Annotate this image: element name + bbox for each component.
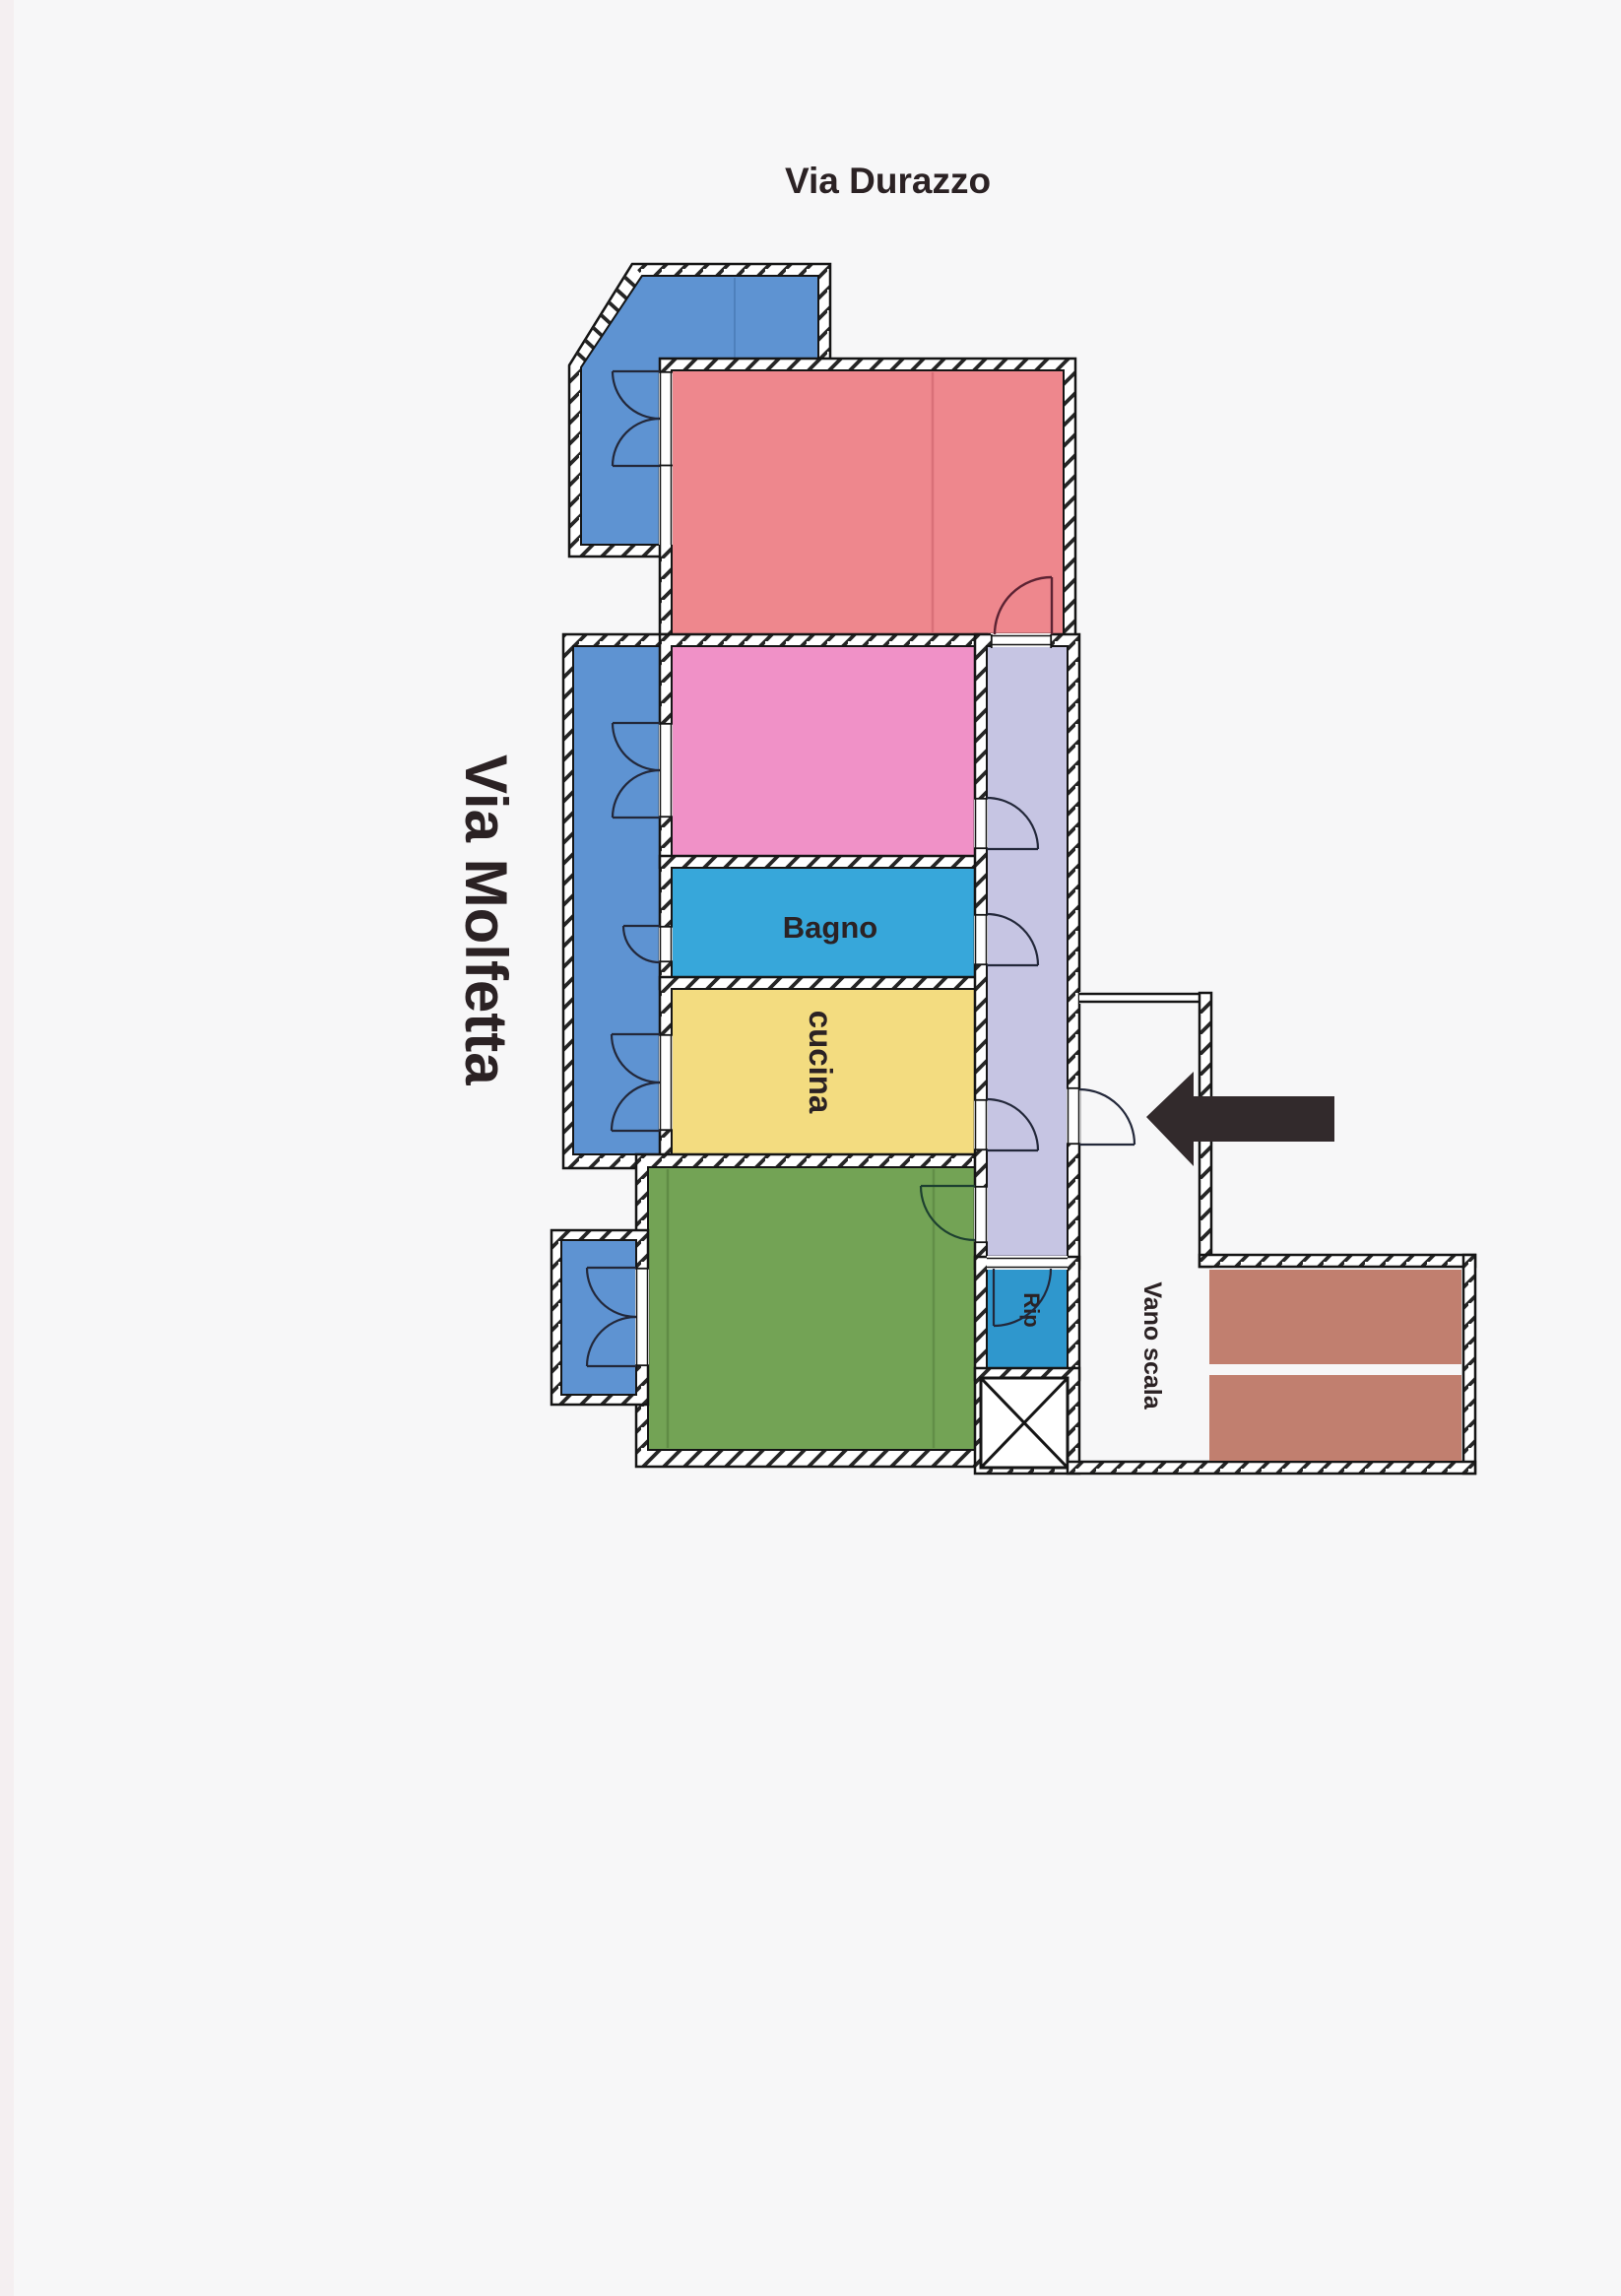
- svg-text:Bagno: Bagno: [783, 910, 877, 945]
- svg-text:Via Molfetta: Via Molfetta: [453, 754, 519, 1085]
- svg-text:cucina: cucina: [803, 1011, 839, 1114]
- svg-text:Via Durazzo: Via Durazzo: [785, 161, 991, 201]
- svg-text:Vano scala: Vano scala: [1138, 1281, 1166, 1410]
